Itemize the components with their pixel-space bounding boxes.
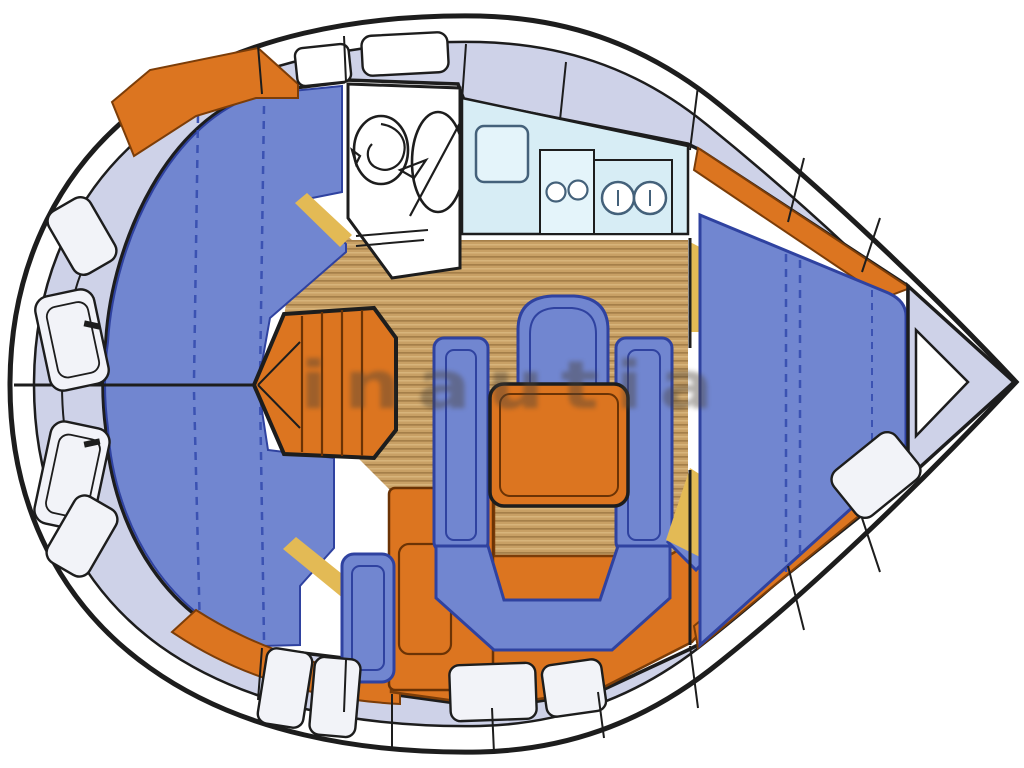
deck-hatch <box>309 656 362 738</box>
boat-floorplan-image: Hull outline Side deck Saloon floor Cock… <box>0 0 1024 768</box>
stove-burner-icon <box>569 181 588 200</box>
deck-hatch <box>294 43 352 86</box>
floorplan-svg: Hull outline Side deck Saloon floor Cock… <box>0 0 1024 768</box>
stove-burner-icon <box>547 183 566 202</box>
deck-hatch <box>361 32 449 76</box>
deck-hatch <box>541 658 608 718</box>
watermark-text: inautia <box>300 347 730 424</box>
icebox-hatch-icon <box>476 126 528 182</box>
